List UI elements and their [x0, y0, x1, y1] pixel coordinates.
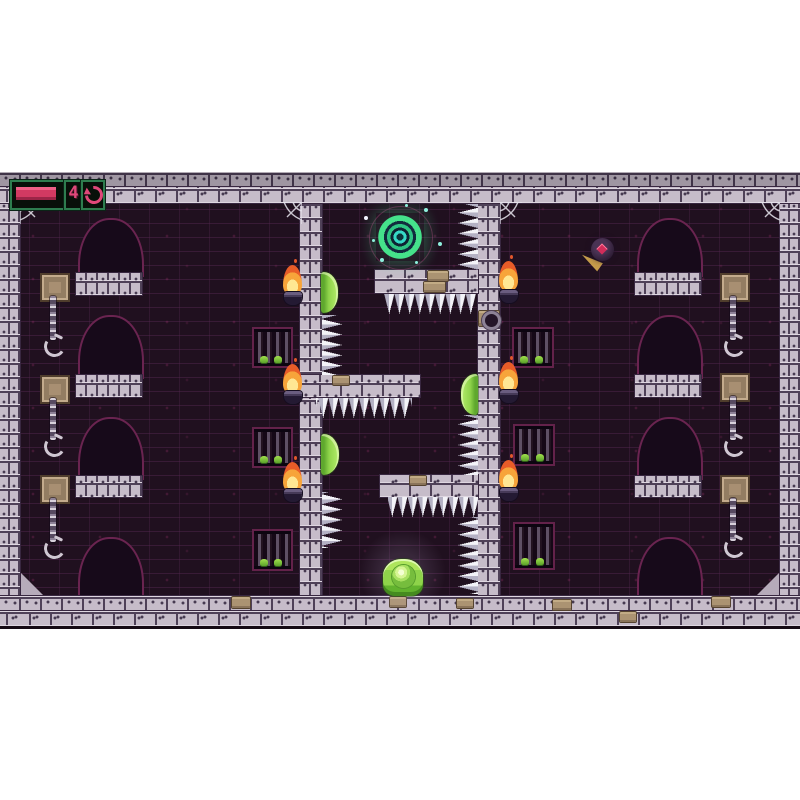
- restart-arrow-icon: [81, 182, 106, 207]
- spiderweb-icon: [280, 202, 302, 224]
- metal-ring-decoration: [482, 311, 501, 330]
- caged-creature: [521, 558, 529, 565]
- portal-particle: [438, 242, 442, 246]
- health-bar: [10, 180, 66, 210]
- arch-sill-ledge: [635, 273, 701, 295]
- cage: [512, 327, 554, 368]
- tan-brick: [712, 597, 730, 607]
- portal-particle: [380, 258, 384, 262]
- tan-brick: [553, 600, 571, 610]
- counter-value: 4: [68, 183, 78, 203]
- chain-hook: [42, 536, 67, 561]
- cage: [513, 424, 555, 466]
- chain-hook: [722, 434, 747, 459]
- tan-brick: [620, 612, 636, 622]
- cage: [252, 427, 293, 468]
- game-area[interactable]: 4: [0, 172, 800, 629]
- portal-particle: [424, 208, 428, 212]
- wall-slime: [321, 434, 339, 475]
- stone-column-right: [478, 187, 500, 596]
- chain-hook: [42, 334, 67, 359]
- spikes-pointing-right: [322, 315, 342, 375]
- caged-creature: [274, 456, 282, 463]
- caged-creature: [274, 356, 282, 363]
- arch-doorway: [78, 315, 144, 379]
- spikes-pointing-left: [458, 517, 478, 594]
- border-wall-left: [0, 172, 20, 629]
- spikes-pointing-right: [322, 492, 342, 548]
- caged-creature: [536, 558, 544, 565]
- comet-enemy: [580, 236, 622, 278]
- chain-hook: [722, 535, 747, 560]
- portal-particle: [405, 204, 408, 207]
- stone-platform: [380, 475, 478, 497]
- arch-doorway: [78, 537, 144, 600]
- portal-particle: [364, 216, 368, 220]
- torch-sconce: [500, 488, 518, 501]
- caged-creature: [536, 454, 544, 461]
- spikes-pointing-down: [384, 293, 476, 314]
- spikes-pointing-left: [458, 197, 478, 270]
- caged-creature: [535, 356, 543, 363]
- tan-brick: [410, 476, 426, 485]
- caged-creature: [521, 454, 529, 461]
- arch-doorway: [637, 417, 703, 480]
- arch-doorway: [78, 417, 144, 480]
- spikes-pointing-down: [388, 497, 478, 517]
- chain-hook: [42, 434, 67, 459]
- tan-brick: [424, 282, 445, 292]
- caged-creature: [260, 456, 268, 463]
- border-wall-right: [780, 172, 800, 629]
- caged-creature: [520, 356, 528, 363]
- tan-brick: [333, 376, 349, 385]
- arch-sill-ledge: [76, 476, 142, 497]
- cage: [252, 327, 293, 368]
- border-ceiling-row: [0, 187, 800, 203]
- arch-doorway: [78, 218, 144, 277]
- torch-flame: [499, 261, 518, 291]
- caged-creature: [260, 356, 268, 363]
- cage: [252, 529, 293, 571]
- corner-slope: [756, 572, 780, 596]
- hud: 4: [10, 180, 105, 208]
- caged-creature: [260, 559, 268, 566]
- wall-slime: [321, 272, 338, 313]
- spiderweb-icon: [758, 202, 780, 224]
- stone-platform: [300, 375, 420, 397]
- portal-particle: [415, 261, 418, 264]
- wall-slime: [461, 374, 478, 415]
- health-bar-fill: [16, 187, 56, 200]
- border-ceiling-row: [0, 172, 800, 187]
- cage: [513, 522, 555, 570]
- arch-sill-ledge: [76, 375, 142, 397]
- restart-button[interactable]: [81, 180, 105, 210]
- arch-doorway: [637, 537, 703, 600]
- spikes-pointing-left: [458, 415, 478, 475]
- spiderweb-icon: [500, 202, 522, 224]
- tan-brick: [232, 597, 250, 608]
- floor-shadow-strip: [0, 626, 800, 629]
- arch-doorway: [637, 315, 703, 379]
- arch-sill-ledge: [635, 476, 701, 497]
- torch-sconce: [500, 290, 518, 303]
- arch-doorway: [637, 218, 703, 277]
- tan-brick: [457, 599, 473, 608]
- torch-sconce: [500, 390, 518, 403]
- screenshot-stage: 4: [0, 0, 800, 800]
- spikes-pointing-down: [316, 397, 412, 418]
- player-slime-core: [392, 565, 415, 588]
- chain-hook: [722, 334, 747, 359]
- corner-slope: [20, 572, 44, 596]
- caged-creature: [274, 559, 282, 566]
- portal: [376, 213, 424, 261]
- arch-sill-ledge: [635, 375, 701, 397]
- arch-sill-ledge: [76, 273, 142, 295]
- portal-particle: [372, 239, 375, 242]
